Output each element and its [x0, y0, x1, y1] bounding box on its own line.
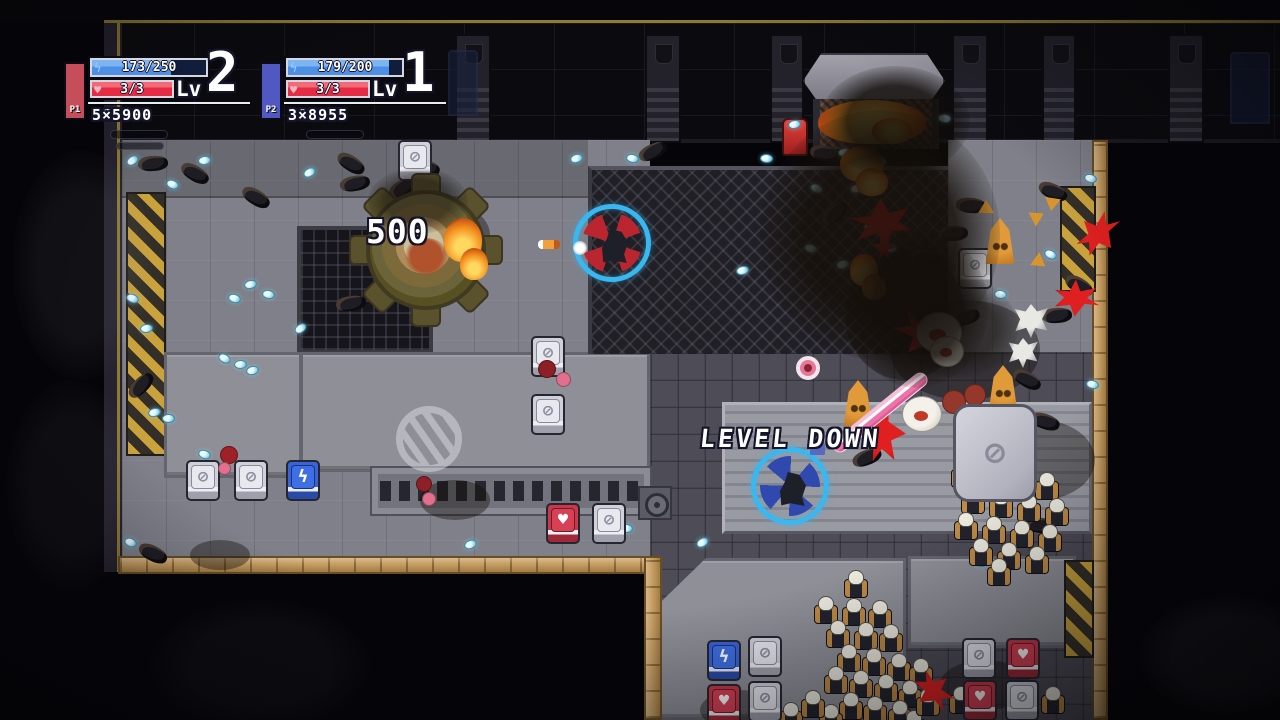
- energy-orb-pickup: [760, 154, 773, 164]
- void-bottom-left: [122, 572, 646, 720]
- crate-none: ⊘: [234, 460, 268, 501]
- shell-debris: [1043, 197, 1061, 212]
- bolt-symbol: ϟ: [712, 645, 736, 669]
- heart-symbol: ♥: [968, 685, 992, 709]
- none-symbol: ⊘: [753, 641, 777, 665]
- crate-none: ⊘: [592, 503, 626, 544]
- player1-level-value: 2: [206, 44, 239, 102]
- energy-orb-pickup: [994, 289, 1008, 300]
- none-symbol: ⊘: [239, 465, 263, 489]
- crate-heart: ♥: [963, 680, 997, 720]
- player2-lives-text: 3/3: [288, 82, 368, 96]
- player2-hp-bar: ϟ 179/200: [286, 58, 404, 77]
- hud-player1-panel: P1 ϟ 173/250 ♥ 3/3 Lv 2 566900×5: [62, 54, 257, 164]
- floor-fan-box: [638, 486, 672, 520]
- player1-multiplier: ×5: [102, 106, 122, 124]
- heart-symbol: ♥: [1011, 643, 1035, 667]
- none-symbol: ⊘: [1010, 685, 1034, 709]
- ball-projectile: [416, 476, 432, 492]
- damage-popup: 500: [366, 212, 429, 251]
- crate-none: ⊘: [748, 681, 782, 720]
- player2-hp-text: 179/200: [288, 60, 402, 75]
- player2-level-label: Lv: [372, 77, 397, 101]
- floor-panel: [300, 352, 650, 472]
- crate-bolt: ϟ: [286, 460, 320, 501]
- machine-crate: [953, 404, 1037, 502]
- crate-bolt: ϟ: [707, 640, 741, 681]
- player1-level-label: Lv: [176, 77, 201, 101]
- smoke-effect: [6, 380, 136, 590]
- fire-effect: [862, 274, 886, 300]
- none-symbol: ⊘: [597, 508, 621, 532]
- fire-effect: [460, 248, 488, 280]
- crate-none: ⊘: [186, 460, 220, 501]
- map-border-vertical: [644, 556, 662, 720]
- hazard-wall-right: [1064, 560, 1094, 658]
- floor-logo-decal: [396, 406, 462, 472]
- crate-none: ⊘: [958, 248, 992, 289]
- fire-effect: [872, 118, 912, 144]
- player2-tag: P2: [260, 62, 282, 120]
- player1-hp-text: 173/250: [92, 60, 206, 75]
- energy-orb-pickup: [463, 538, 478, 551]
- fire-effect: [856, 168, 888, 196]
- crate-none: ⊘: [531, 394, 565, 435]
- dead-enemy-body: [938, 225, 969, 242]
- ball-projectile: [538, 360, 556, 378]
- crate-heart: ♥: [1006, 638, 1040, 679]
- enemy-soldier: [986, 558, 1010, 586]
- muzzle-flash: [573, 241, 587, 255]
- enemy-soldier: [800, 690, 824, 718]
- enemy-soldier: [1040, 686, 1064, 714]
- none-symbol: ⊘: [963, 253, 987, 277]
- game-viewport[interactable]: ⊘⊘⊘♥⊘⊘⊘ϟ⊘ϟ⊘♥⊘⊘♥♥⊘ 500 LEVEL DOWN P1 ϟ: [0, 0, 1280, 720]
- white-blob-enemy: [902, 396, 942, 432]
- crate-none: ⊘: [962, 638, 996, 679]
- pink-target-marker: [796, 356, 820, 380]
- ball-projectile: [422, 492, 436, 506]
- map-border-bottom-left: [118, 556, 660, 574]
- crate-none: ⊘: [748, 636, 782, 677]
- player2-multiplier: ×8: [298, 106, 318, 124]
- heart-symbol: ♥: [551, 508, 575, 532]
- dead-enemy-body: [1010, 365, 1043, 393]
- heart-symbol: ♥: [712, 689, 736, 713]
- enemy-soldier: [1044, 498, 1068, 526]
- ball-projectile: [964, 384, 986, 406]
- bolt-symbol: ϟ: [291, 465, 315, 489]
- ball-projectile: [556, 372, 571, 387]
- none-symbol: ⊘: [967, 643, 991, 667]
- destroyed-bot: [1014, 304, 1048, 338]
- hud-slot: [110, 130, 168, 139]
- enemy-soldier: [843, 570, 867, 598]
- player1-lives-text: 3/3: [92, 82, 172, 96]
- energy-orb-pickup: [243, 279, 258, 291]
- enemy-soldier: [953, 512, 977, 540]
- enemy-soldier: [823, 666, 847, 694]
- projectile: [538, 240, 560, 249]
- player1-lives-bar: ♥ 3/3: [90, 80, 174, 98]
- hud-slot: [116, 142, 164, 150]
- energy-orb-pickup: [695, 535, 711, 549]
- void-right: [1108, 145, 1280, 720]
- none-symbol: ⊘: [191, 465, 215, 489]
- energy-orb-pickup: [261, 289, 275, 300]
- player1-hp-bar: ϟ 173/250: [90, 58, 208, 77]
- crate-heart: ♥: [546, 503, 580, 544]
- hud-slot: [306, 130, 364, 139]
- player2-character: [751, 447, 829, 525]
- energy-orb-pickup: [938, 113, 952, 124]
- enemy-soldier: [1024, 546, 1048, 574]
- hud: P1 ϟ 173/250 ♥ 3/3 Lv 2 566900×5 P2: [0, 0, 480, 180]
- energy-orb-pickup: [123, 536, 138, 549]
- dead-enemy-body: [636, 138, 670, 164]
- player2-lives-bar: ♥ 3/3: [286, 80, 370, 98]
- shell-debris: [978, 200, 994, 213]
- orange-creature-enemy: [982, 218, 1018, 264]
- ball-projectile: [218, 462, 231, 475]
- spawner-hood: [803, 53, 945, 101]
- hud-player2-panel: P2 ϟ 179/200 ♥ 3/3 Lv 1 302955×8: [258, 54, 453, 164]
- status-popup: LEVEL DOWN: [698, 424, 882, 453]
- energy-orb-pickup: [227, 292, 242, 304]
- white-blob-enemy: [930, 336, 964, 367]
- enemy-soldier: [862, 696, 886, 720]
- player1-tag: P1: [64, 62, 86, 120]
- player2-level-value: 1: [402, 44, 435, 102]
- crate-none: ⊘: [1005, 680, 1039, 720]
- none-symbol: ⊘: [536, 399, 560, 423]
- none-symbol: ⊘: [753, 686, 777, 710]
- crate-heart: ♥: [707, 684, 741, 720]
- destroyed-bot: [1008, 338, 1038, 368]
